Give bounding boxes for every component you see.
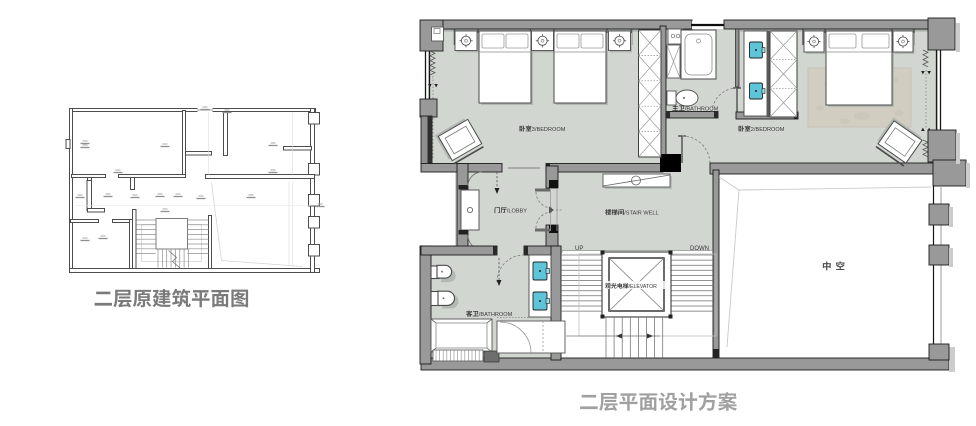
svg-text:DOWN: DOWN — [690, 246, 709, 252]
svg-text:/BATHROOM: /BATHROOM — [479, 312, 513, 318]
svg-text:2/BEDROOM: 2/BEDROOM — [751, 127, 785, 133]
svg-text:/LOBBY: /LOBBY — [507, 209, 527, 215]
svg-text:UP: UP — [575, 246, 583, 252]
svg-text:/BATHROOM: /BATHROOM — [685, 107, 719, 113]
svg-text:3/BEDROOM: 3/BEDROOM — [532, 127, 566, 133]
svg-text:/STAIR WELL: /STAIR WELL — [624, 211, 658, 217]
svg-text:/ELEVATOR: /ELEVATOR — [629, 284, 658, 290]
